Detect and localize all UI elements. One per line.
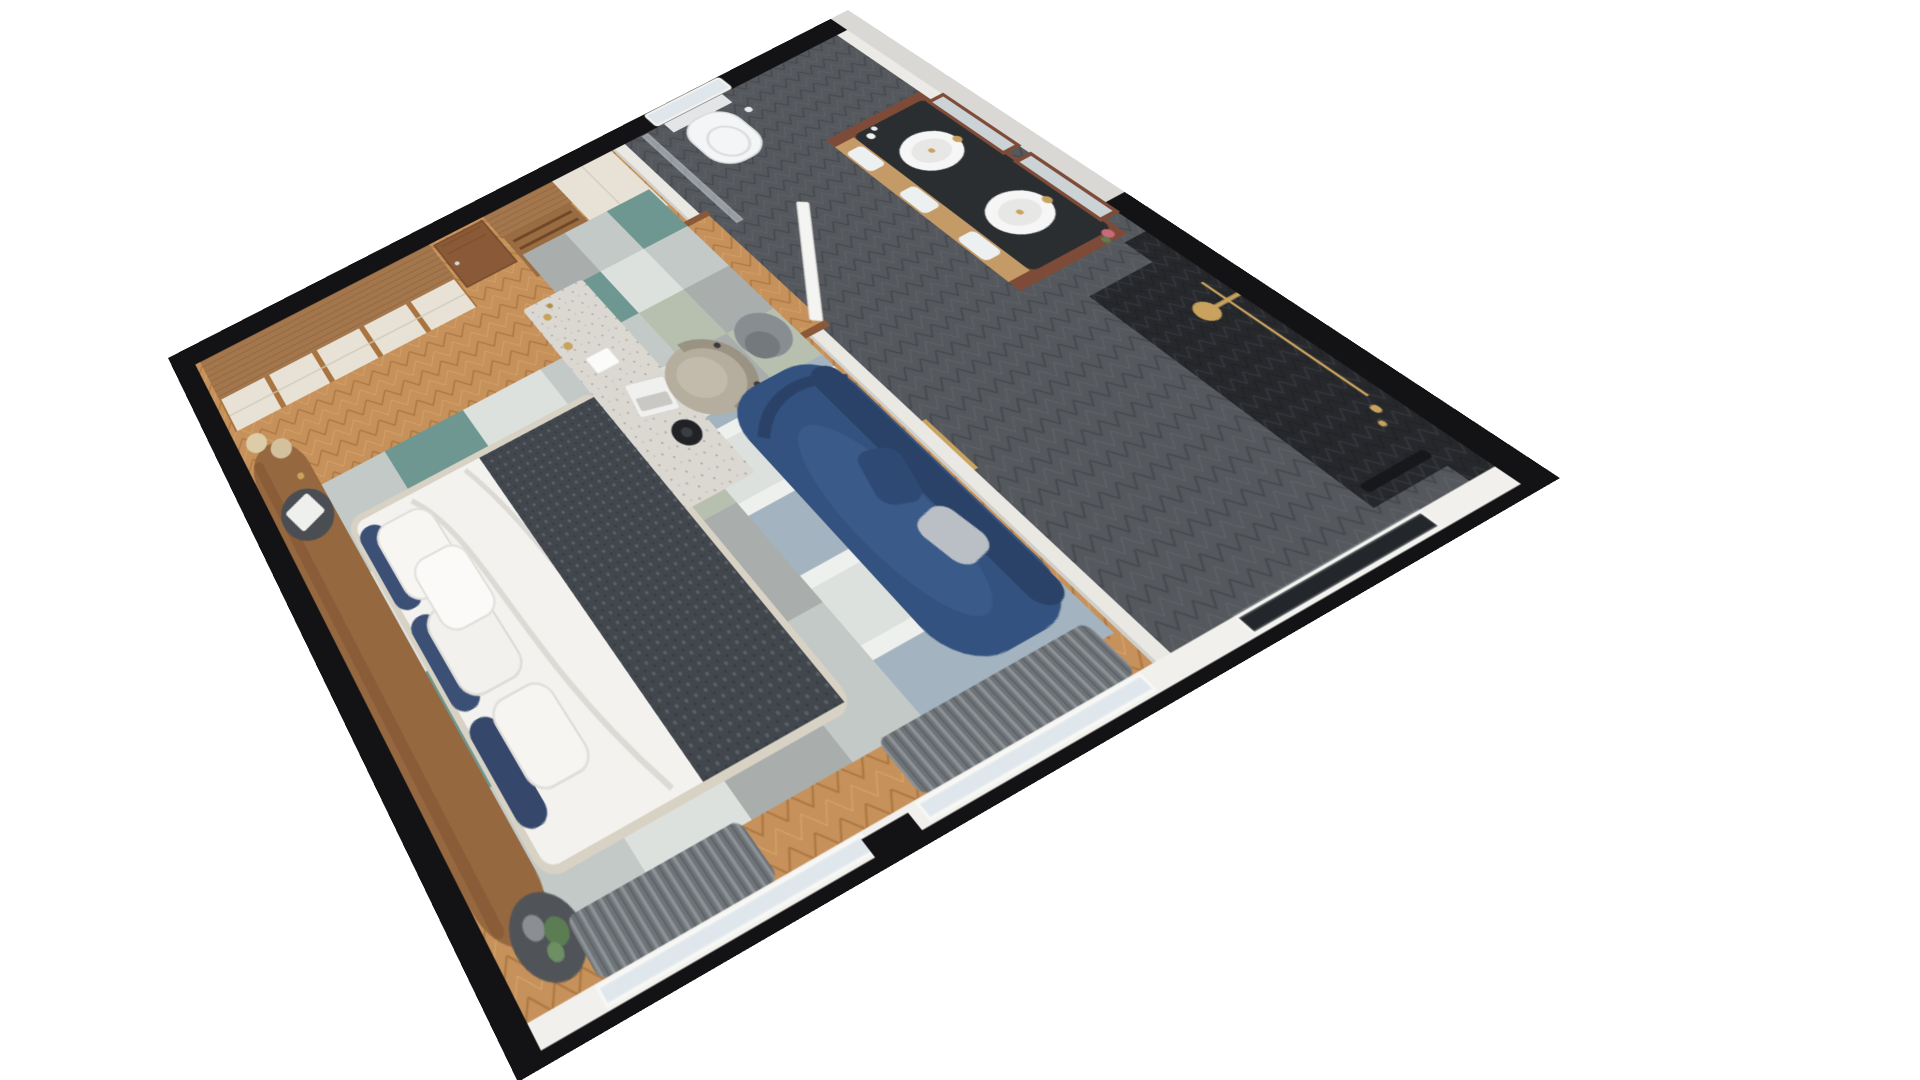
floorplan-svg xyxy=(168,10,1560,1080)
floor-plan-3d xyxy=(168,10,1560,1080)
page-background xyxy=(0,0,1920,1080)
